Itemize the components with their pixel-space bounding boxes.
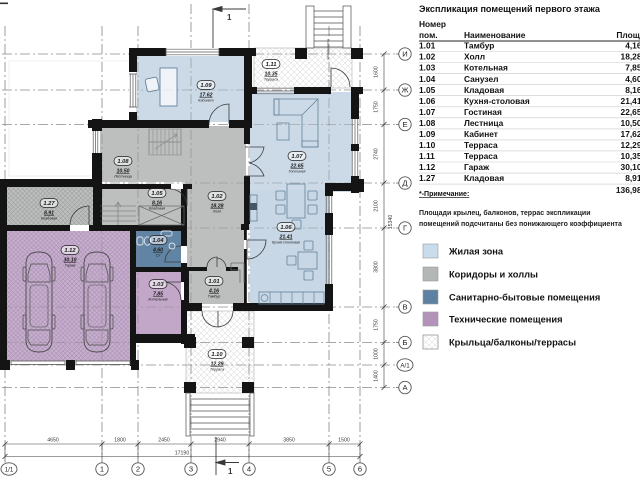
svg-text:2100: 2100 (374, 200, 380, 212)
svg-text:1.04: 1.04 (152, 238, 164, 244)
svg-text:1: 1 (100, 465, 104, 474)
svg-text:1.12: 1.12 (419, 162, 436, 172)
svg-text:1.27: 1.27 (43, 201, 55, 207)
svg-text:Гараж: Гараж (464, 162, 489, 172)
svg-text:Кладовая: Кладовая (41, 216, 57, 220)
svg-text:8,91: 8,91 (625, 173, 640, 183)
svg-text:1.01: 1.01 (419, 41, 436, 51)
svg-text:1: 1 (228, 467, 233, 476)
svg-text:Наименование: Наименование (464, 30, 526, 40)
svg-text:Санузел: Санузел (464, 74, 498, 84)
svg-text:Санитарно-бытовые помещения: Санитарно-бытовые помещения (449, 293, 600, 303)
svg-text:1.09: 1.09 (419, 129, 436, 139)
svg-text:1.03: 1.03 (419, 63, 436, 73)
svg-text:Б: Б (403, 338, 408, 347)
svg-text:Холл: Холл (212, 209, 222, 213)
svg-text:15340: 15340 (388, 215, 394, 230)
svg-text:Тамбур: Тамбур (208, 294, 221, 298)
svg-text:2450: 2450 (158, 438, 170, 444)
svg-text:Коридоры и холлы: Коридоры и холлы (449, 270, 538, 280)
svg-text:8,16: 8,16 (625, 85, 640, 95)
svg-text:1.03: 1.03 (152, 282, 164, 288)
svg-text:Терраса: Терраса (464, 140, 498, 150)
svg-text:Лестница: Лестница (113, 174, 132, 178)
svg-text:Экспликация помещений первого: Экспликация помещений первого этажа (419, 4, 601, 14)
svg-text:1.04: 1.04 (419, 74, 436, 84)
svg-text:17,62: 17,62 (621, 129, 640, 139)
svg-text:4,60: 4,60 (625, 74, 640, 84)
svg-text:1500: 1500 (338, 438, 350, 444)
svg-text:Ж: Ж (401, 86, 408, 95)
svg-text:1.07: 1.07 (291, 154, 303, 160)
svg-text:Терраса: Терраса (464, 151, 498, 161)
svg-text:Площади крылец, балконов, терр: Площади крылец, балконов, террас эксплик… (419, 209, 591, 217)
svg-text:2: 2 (136, 465, 140, 474)
svg-text:Кабинет: Кабинет (198, 98, 213, 102)
svg-text:Г: Г (403, 224, 407, 233)
svg-text:Технические помещения: Технические помещения (449, 315, 563, 325)
svg-text:1.02: 1.02 (211, 194, 223, 200)
svg-text:22,65: 22,65 (621, 107, 640, 117)
svg-text:3: 3 (189, 465, 193, 474)
svg-text:Кладовая: Кладовая (464, 173, 504, 183)
svg-text:А/1: А/1 (400, 363, 410, 370)
svg-text:помещений подсчитаны без пониж: помещений подсчитаны без понижающего коэ… (419, 220, 622, 228)
svg-text:1.08: 1.08 (117, 159, 129, 165)
svg-text:Котельная: Котельная (148, 297, 167, 301)
svg-text:1800: 1800 (114, 438, 126, 444)
svg-text:СУ: СУ (156, 253, 161, 257)
svg-text:1/1: 1/1 (5, 467, 14, 474)
svg-text:И: И (402, 50, 407, 59)
svg-text:1.27: 1.27 (419, 173, 436, 183)
svg-text:Тамбур: Тамбур (464, 41, 494, 51)
svg-text:10,35: 10,35 (621, 151, 640, 161)
svg-text:Крыльца/балконы/террасы: Крыльца/балконы/террасы (449, 338, 576, 348)
svg-text:4,16: 4,16 (625, 41, 640, 51)
svg-text:Терраса: Терраса (210, 367, 224, 371)
svg-text:Номер: Номер (419, 19, 446, 29)
svg-text:3800: 3800 (374, 261, 380, 273)
svg-text:Площадь: Площадь (616, 30, 640, 40)
svg-text:1.02: 1.02 (419, 52, 436, 62)
svg-text:1.11: 1.11 (419, 151, 435, 161)
svg-text:1750: 1750 (374, 101, 380, 113)
svg-text:Кухня-столовая: Кухня-столовая (464, 96, 530, 106)
svg-text:Е: Е (402, 120, 407, 129)
svg-text:12,29: 12,29 (621, 140, 640, 150)
svg-text:1400: 1400 (374, 370, 380, 382)
svg-text:1.07: 1.07 (419, 107, 436, 117)
svg-text:Кабинет: Кабинет (464, 129, 498, 139)
svg-text:4650: 4650 (47, 438, 59, 444)
svg-text:Лестница: Лестница (464, 118, 504, 128)
svg-text:*-Примечание:: *-Примечание: (419, 191, 469, 198)
svg-text:пом.: пом. (419, 30, 438, 40)
svg-text:4: 4 (247, 465, 251, 474)
svg-text:1: 1 (227, 13, 232, 22)
svg-text:Холл: Холл (464, 52, 485, 62)
svg-text:21,41: 21,41 (621, 96, 640, 106)
svg-text:Д: Д (402, 179, 407, 188)
svg-text:1.06: 1.06 (280, 225, 292, 231)
svg-text:1600: 1600 (374, 66, 380, 78)
svg-text:1.11: 1.11 (266, 62, 277, 68)
svg-text:Кухня-столовая: Кухня-столовая (272, 240, 300, 244)
svg-text:1.10: 1.10 (211, 352, 223, 358)
svg-text:1.05: 1.05 (419, 85, 436, 95)
svg-text:7,85: 7,85 (625, 63, 640, 73)
svg-text:5: 5 (327, 465, 331, 474)
svg-text:Жилая зона: Жилая зона (448, 247, 504, 257)
svg-text:30,10: 30,10 (621, 162, 640, 172)
svg-text:1.10: 1.10 (419, 140, 436, 150)
svg-text:6: 6 (358, 465, 362, 474)
svg-text:1000: 1000 (374, 348, 380, 360)
svg-text:1.01: 1.01 (208, 279, 219, 285)
svg-text:Терраса: Терраса (264, 77, 278, 81)
svg-text:Гараж: Гараж (65, 263, 76, 267)
svg-text:18,28: 18,28 (621, 52, 640, 62)
svg-text:1.05: 1.05 (151, 191, 163, 197)
svg-text:Гостиная: Гостиная (289, 169, 306, 173)
svg-text:Котельная: Котельная (464, 63, 508, 73)
svg-text:2740: 2740 (374, 148, 380, 160)
svg-text:Гостиная: Гостиная (464, 107, 502, 117)
svg-text:1.12: 1.12 (64, 248, 76, 254)
svg-text:136,98: 136,98 (616, 185, 640, 195)
svg-text:В: В (402, 303, 407, 312)
svg-text:10,50: 10,50 (621, 118, 640, 128)
svg-text:Кладовая: Кладовая (149, 206, 165, 210)
svg-text:1.09: 1.09 (200, 83, 212, 89)
svg-text:1750: 1750 (374, 319, 380, 331)
svg-text:1.06: 1.06 (419, 96, 436, 106)
svg-text:17190: 17190 (175, 451, 190, 457)
svg-text:1.08: 1.08 (419, 118, 436, 128)
svg-text:Кладовая: Кладовая (464, 85, 504, 95)
svg-text:2940: 2940 (214, 438, 226, 444)
svg-text:3850: 3850 (283, 438, 295, 444)
